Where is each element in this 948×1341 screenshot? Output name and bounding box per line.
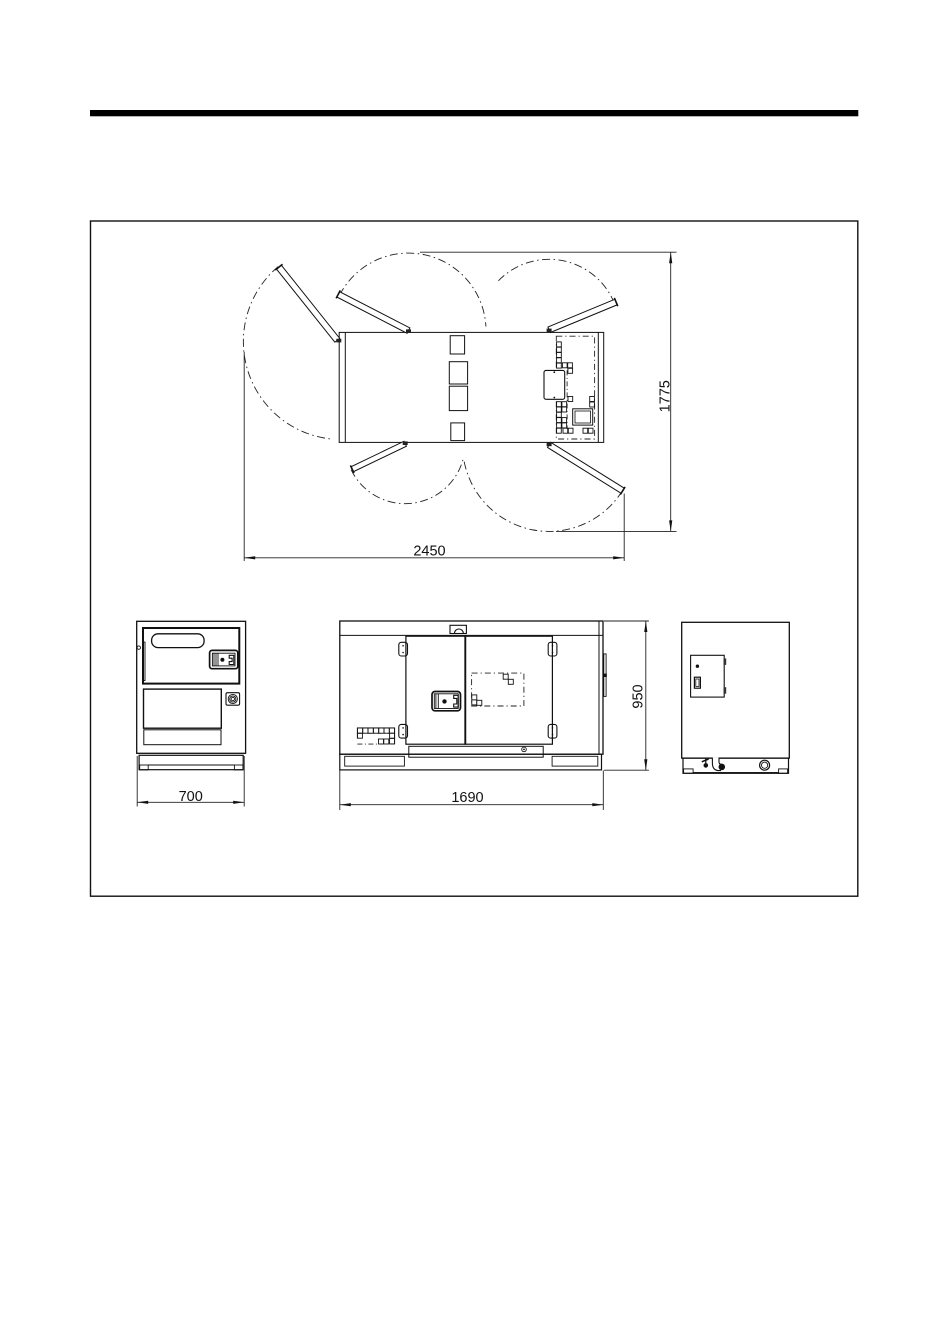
svg-text:1690: 1690 [451, 790, 483, 806]
svg-text:2450: 2450 [413, 543, 445, 559]
svg-text:1775: 1775 [657, 380, 673, 412]
svg-text:700: 700 [179, 789, 203, 805]
svg-text:950: 950 [631, 684, 647, 708]
